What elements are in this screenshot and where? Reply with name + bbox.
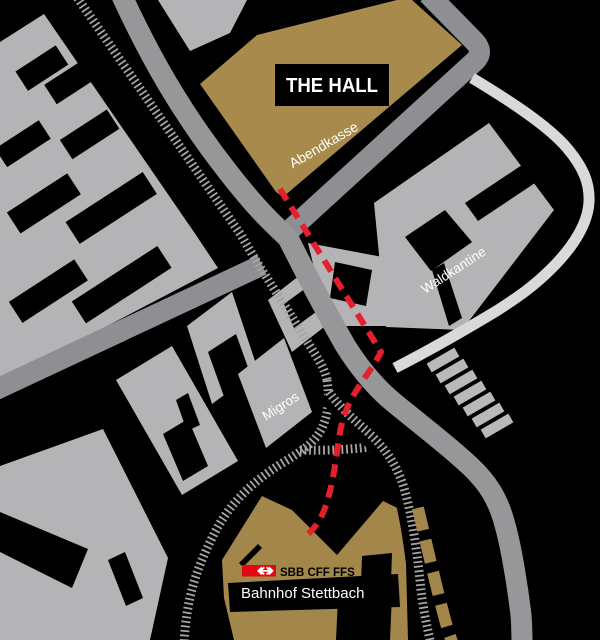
svg-text:Bahnhof Stettbach: Bahnhof Stettbach — [241, 585, 364, 602]
svg-text:THE HALL: THE HALL — [286, 75, 378, 97]
svg-text:SBB CFF FFS: SBB CFF FFS — [280, 567, 355, 579]
